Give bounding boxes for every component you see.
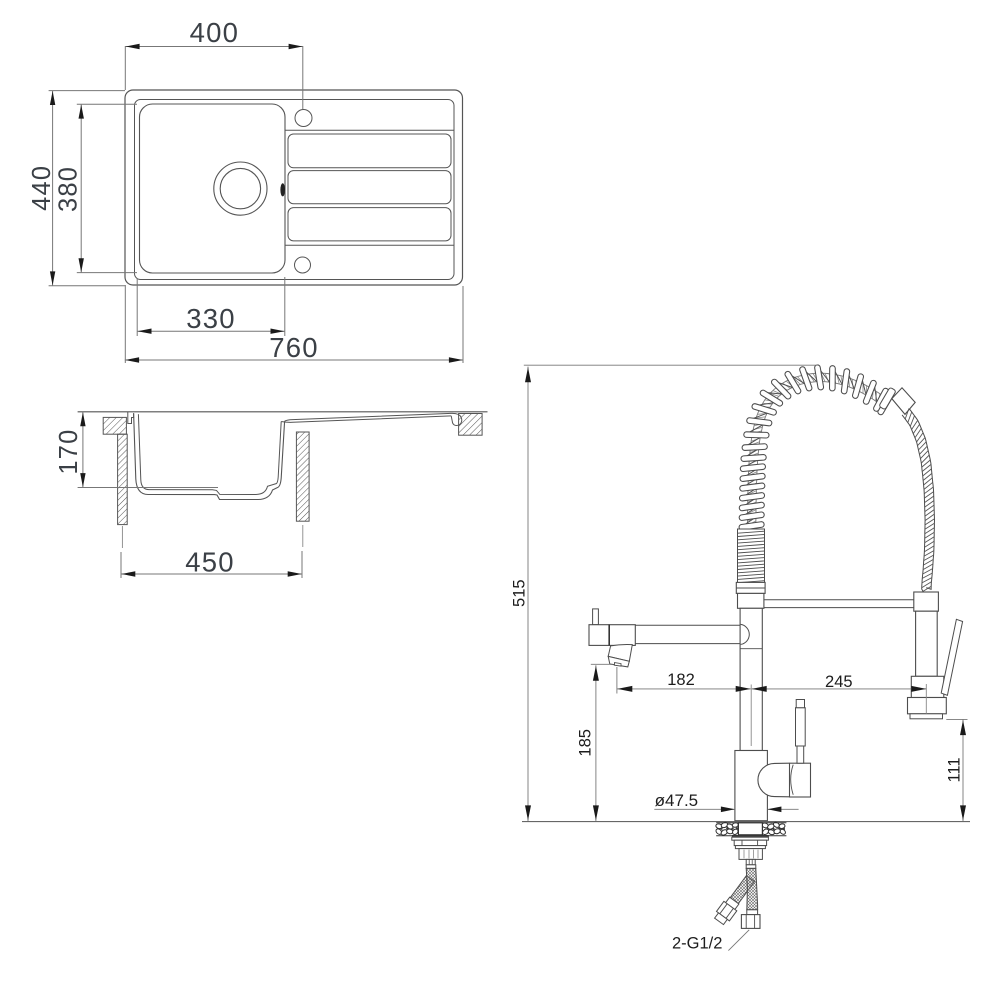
svg-text:ø47.5: ø47.5 (655, 791, 698, 810)
svg-text:450: 450 (185, 546, 234, 577)
svg-text:440: 440 (28, 165, 56, 211)
svg-text:760: 760 (269, 332, 318, 363)
svg-text:2-G1/2: 2-G1/2 (672, 935, 722, 953)
svg-text:380: 380 (54, 166, 82, 212)
svg-text:515: 515 (511, 579, 529, 607)
svg-text:182: 182 (667, 671, 695, 689)
svg-text:111: 111 (946, 757, 964, 782)
svg-text:245: 245 (825, 673, 853, 691)
svg-text:330: 330 (186, 303, 235, 334)
svg-text:185: 185 (577, 729, 595, 757)
svg-text:400: 400 (190, 17, 239, 48)
svg-text:170: 170 (55, 428, 83, 474)
